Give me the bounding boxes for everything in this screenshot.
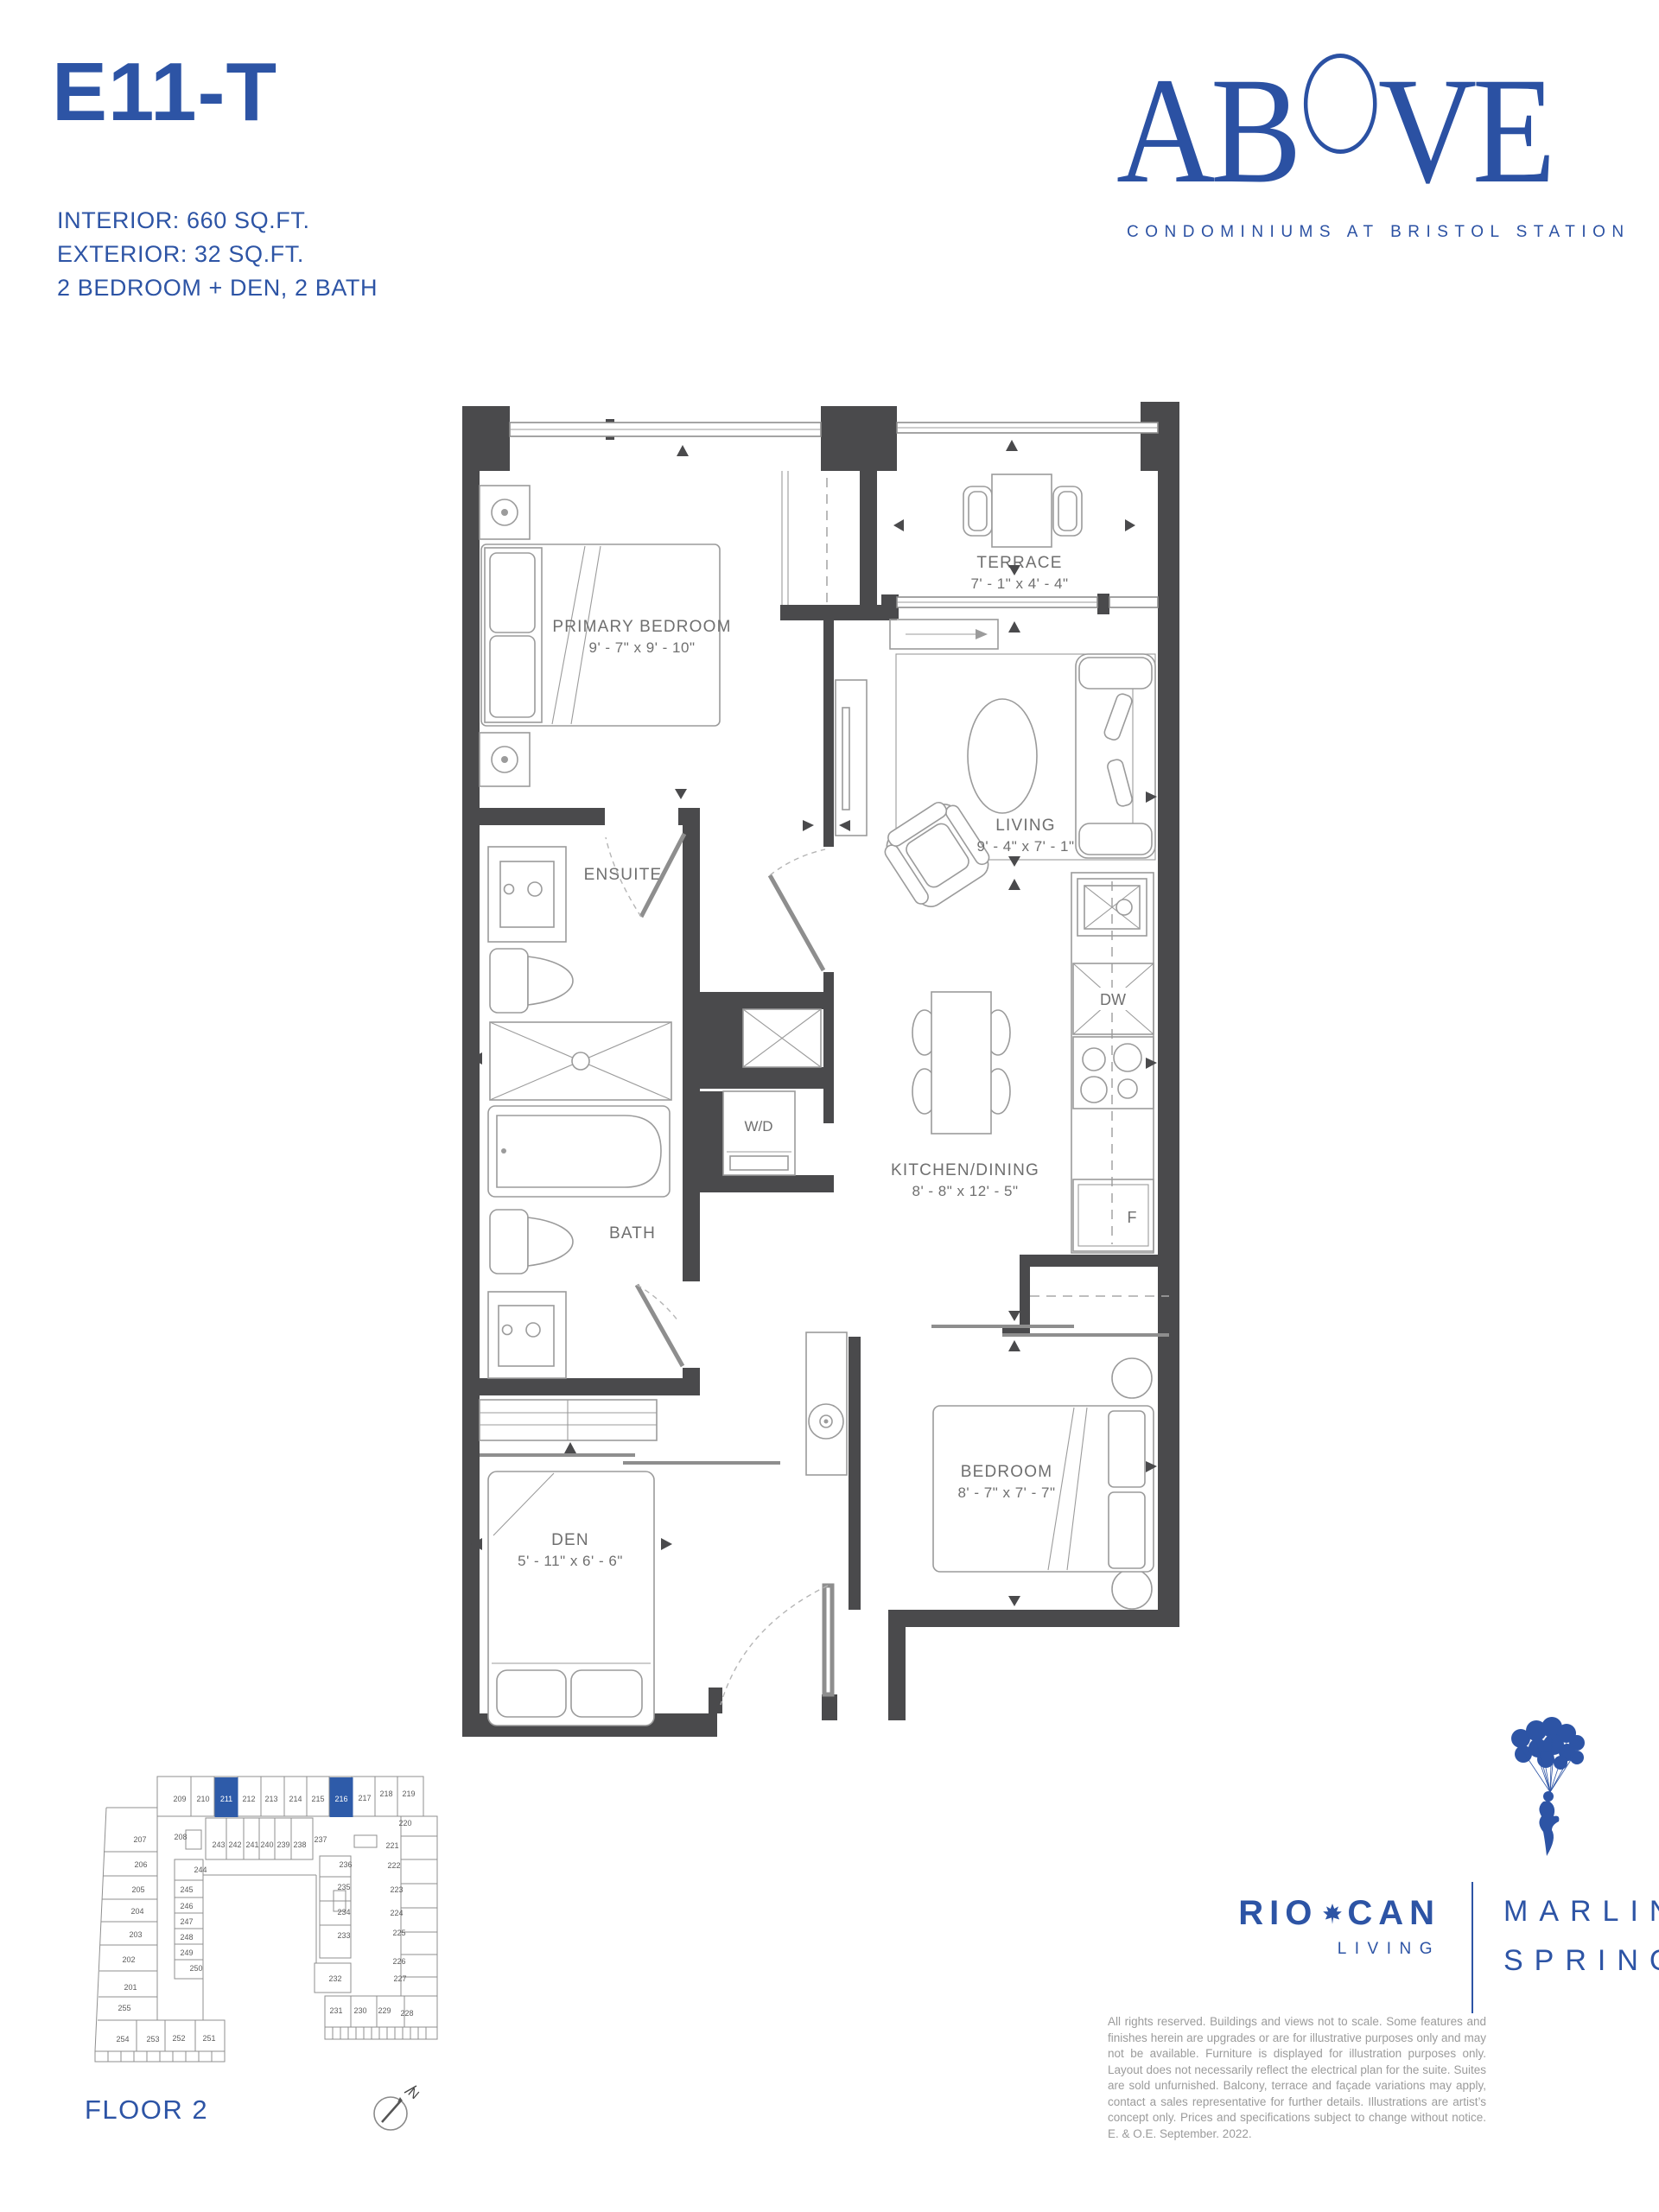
key-plan-unit-245: 245	[180, 1885, 193, 1894]
fixture-label-washer-dryer: W/D	[744, 1118, 772, 1135]
marlin-spring-logo: MARLIN SPRING	[1503, 1887, 1659, 1986]
key-plan-unit-254: 254	[116, 2035, 129, 2044]
key-plan-unit-219: 219	[402, 1789, 415, 1798]
key-plan-unit-224: 224	[390, 1909, 403, 1917]
key-plan-unit-227: 227	[393, 1974, 406, 1983]
key-plan-unit-238: 238	[293, 1840, 306, 1849]
terrace: TERRACE 7' - 1" x 4' - 4"	[963, 474, 1082, 592]
unit-specs: INTERIOR: 660 SQ.FT. EXTERIOR: 32 SQ.FT.…	[57, 204, 378, 305]
room-dims-terrace: 7' - 1" x 4' - 4"	[970, 575, 1068, 592]
key-plan-unit-210: 210	[196, 1795, 209, 1803]
room-label-ensuite: ENSUITE	[584, 866, 663, 884]
unit-code: E11-T	[52, 45, 277, 140]
key-plan-unit-233: 233	[337, 1931, 350, 1940]
key-plan-unit-209: 209	[173, 1795, 186, 1803]
key-plan-unit-202: 202	[122, 1955, 135, 1964]
key-plan-unit-218: 218	[379, 1789, 392, 1798]
kitchen: DW F KITCHEN/DINING 8' - 8" x 12' - 5"	[891, 873, 1154, 1253]
key-plan-unit-243: 243	[212, 1840, 225, 1849]
legal-disclaimer: All rights reserved. Buildings and views…	[1108, 2014, 1486, 2142]
key-plan-unit-241: 241	[245, 1840, 258, 1849]
key-plan-unit-216: 216	[334, 1795, 347, 1803]
hall-console	[806, 1332, 847, 1475]
ensuite: ENSUITE	[488, 847, 671, 1100]
key-plan-unit-222: 222	[387, 1861, 400, 1870]
key-plan-unit-235: 235	[337, 1883, 350, 1891]
key-plan-unit-247: 247	[180, 1917, 193, 1926]
riocan-living: LIVING	[1177, 1940, 1440, 1959]
riocan-wordmark: RIO CAN	[1177, 1894, 1440, 1933]
spec-exterior: EXTERIOR: 32 SQ.FT.	[57, 238, 378, 271]
marlin-line1: MARLIN	[1503, 1887, 1659, 1936]
key-plan-unit-240: 240	[260, 1840, 273, 1849]
room-dims-bedroom: 8' - 7" x 7' - 7"	[957, 1484, 1055, 1501]
fixture-label-fridge: F	[1128, 1209, 1137, 1226]
key-plan-unit-225: 225	[392, 1929, 405, 1937]
key-plan-unit-251: 251	[202, 2034, 215, 2043]
above-wordmark: AB VE	[1116, 54, 1575, 207]
above-logo-ve: VE	[1378, 55, 1551, 207]
key-plan-unit-237: 237	[314, 1835, 327, 1844]
maple-leaf-icon	[1321, 1903, 1344, 1925]
compass-icon: N	[363, 2075, 432, 2141]
floorplan-sheet: { "header": { "unit_code": "E11-T", "spe…	[0, 0, 1659, 2212]
key-plan-unit-252: 252	[172, 2034, 185, 2043]
key-plan-unit-253: 253	[146, 2035, 159, 2044]
key-plan-unit-239: 239	[276, 1840, 289, 1849]
key-plan-outline	[95, 1777, 437, 2062]
key-plan-units: 2092102112122132142152162172182192202212…	[116, 1777, 415, 2044]
key-plan-unit-203: 203	[129, 1930, 142, 1939]
key-plan-unit-236: 236	[339, 1860, 352, 1869]
key-plan-unit-230: 230	[353, 2006, 366, 2015]
key-plan-unit-206: 206	[134, 1860, 147, 1869]
fixture-label-dishwasher: DW	[1100, 991, 1126, 1008]
key-plan-unit-212: 212	[242, 1795, 255, 1803]
key-plan: 2092102112122132142152162172182192202212…	[60, 1763, 449, 2074]
room-dims-primary-bedroom: 9' - 7" x 9' - 10"	[589, 639, 696, 656]
key-plan-unit-255: 255	[118, 2004, 130, 2012]
key-plan-unit-229: 229	[378, 2006, 391, 2015]
room-label-primary-bedroom: PRIMARY BEDROOM	[552, 618, 731, 636]
above-logo-o-circle-icon	[1303, 54, 1376, 154]
key-plan-unit-201: 201	[124, 1983, 137, 1992]
key-plan-unit-249: 249	[180, 1948, 193, 1957]
key-plan-unit-215: 215	[311, 1795, 324, 1803]
room-label-bath: BATH	[609, 1224, 656, 1243]
riocan-logo: RIO CAN LIVING	[1177, 1894, 1440, 1959]
key-plan-unit-232: 232	[328, 1974, 341, 1983]
bath: BATH	[488, 1106, 670, 1378]
room-dims-kitchen: 8' - 8" x 12' - 5"	[912, 1183, 1019, 1199]
key-plan-unit-207: 207	[133, 1835, 146, 1844]
key-plan-unit-214: 214	[289, 1795, 302, 1803]
key-plan-unit-242: 242	[228, 1840, 241, 1849]
key-plan-unit-244: 244	[194, 1866, 207, 1874]
room-dims-den: 5' - 11" x 6' - 6"	[518, 1553, 623, 1569]
key-plan-unit-204: 204	[130, 1907, 143, 1916]
key-plan-unit-220: 220	[398, 1819, 411, 1827]
floor-plan: PRIMARY BEDROOM 9' - 7" x 9' - 10" TERRA…	[454, 376, 1231, 1758]
key-plan-unit-205: 205	[131, 1885, 144, 1894]
key-plan-unit-226: 226	[392, 1957, 405, 1966]
dining	[912, 992, 1010, 1134]
key-plan-unit-217: 217	[358, 1794, 371, 1802]
key-plan-unit-234: 234	[337, 1908, 350, 1916]
key-plan-unit-231: 231	[329, 2006, 342, 2015]
room-label-bedroom: BEDROOM	[961, 1463, 1053, 1481]
key-plan-unit-248: 248	[180, 1933, 193, 1942]
room-label-living: LIVING	[995, 817, 1056, 835]
key-plan-unit-228: 228	[400, 2009, 413, 2018]
den: DEN 5' - 11" x 6' - 6"	[480, 1400, 780, 1726]
room-label-terrace: TERRACE	[976, 554, 1062, 572]
key-plan-unit-208: 208	[174, 1833, 187, 1841]
room-label-kitchen: KITCHEN/DINING	[891, 1161, 1039, 1179]
spec-interior: INTERIOR: 660 SQ.FT.	[57, 204, 378, 238]
key-plan-unit-246: 246	[180, 1902, 193, 1910]
primary-bedroom: PRIMARY BEDROOM 9' - 7" x 9' - 10"	[480, 471, 827, 786]
spec-layout: 2 BEDROOM + DEN, 2 BATH	[57, 271, 378, 305]
bedroom: BEDROOM 8' - 7" x 7' - 7"	[931, 1296, 1169, 1609]
riocan-can: CAN	[1347, 1894, 1440, 1933]
key-plan-unit-223: 223	[390, 1885, 403, 1894]
key-plan-unit-213: 213	[264, 1795, 277, 1803]
logo-divider	[1471, 1882, 1473, 2013]
above-tagline: CONDOMINIUMS AT BRISTOL STATION	[1127, 223, 1626, 242]
riocan-rio: RIO	[1238, 1894, 1318, 1933]
above-logo: AB VE CONDOMINIUMS AT BRISTOL STATION	[1116, 54, 1626, 242]
room-label-den: DEN	[551, 1531, 589, 1549]
marlin-line2: SPRING	[1503, 1936, 1659, 1986]
floor-label: FLOOR 2	[85, 2094, 208, 2126]
key-plan-unit-211: 211	[220, 1795, 232, 1803]
key-plan-unit-250: 250	[189, 1964, 202, 1973]
room-dims-living: 9' - 4" x 7' - 1"	[976, 838, 1074, 855]
above-logo-ab: AB	[1116, 55, 1297, 207]
balloon-girl-icon	[1497, 1713, 1600, 1861]
key-plan-unit-221: 221	[385, 1841, 398, 1850]
